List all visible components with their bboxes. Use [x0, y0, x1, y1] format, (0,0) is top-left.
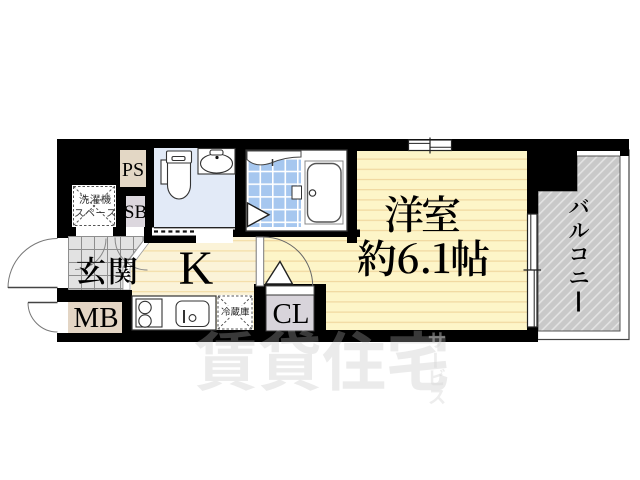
svg-text:SB: SB [124, 202, 147, 223]
svg-text:K: K [179, 242, 214, 295]
svg-text:PS: PS [122, 159, 144, 181]
svg-text:CL: CL [272, 298, 309, 330]
svg-text:MB: MB [73, 302, 118, 334]
